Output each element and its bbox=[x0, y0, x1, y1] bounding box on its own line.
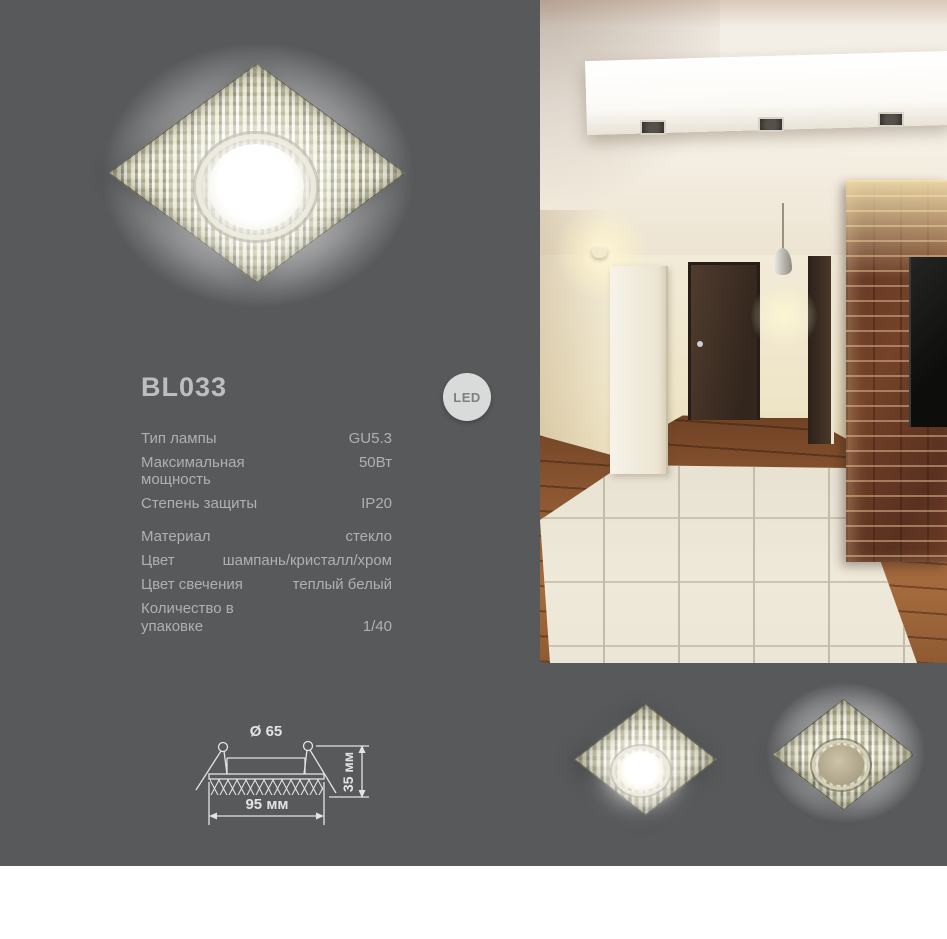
door-handle bbox=[697, 341, 703, 347]
spec-label: Цвет свечения bbox=[141, 576, 259, 593]
spec-value: стекло bbox=[345, 528, 392, 545]
spec-value: 50Вт bbox=[359, 454, 392, 471]
spec-value: шампань/кристалл/хром bbox=[223, 552, 392, 569]
spec-row-light-color: Цвет свечения теплый белый bbox=[141, 573, 392, 597]
spec-row-protection: Степень защиты IP20 bbox=[141, 492, 392, 516]
tv-screen bbox=[909, 257, 947, 427]
dimension-diagram: Ø 65 35 мм 95 мм bbox=[183, 712, 388, 839]
width-label: 95 мм bbox=[245, 796, 288, 813]
spec-value: IP20 bbox=[361, 495, 392, 512]
spec-row-max-power: Максимальная мощность 50Вт bbox=[141, 450, 392, 492]
recessed-spot-3 bbox=[878, 112, 904, 127]
spec-value: теплый белый bbox=[293, 576, 392, 593]
spec-label: Количество в упаковке bbox=[141, 600, 259, 635]
spec-label: Цвет bbox=[141, 552, 223, 569]
spec-row-pack-qty: Количество в упаковке 1/40 bbox=[141, 597, 392, 639]
caption-band: ЛАМПА СВЕТОДИОДНАЯ ПОДСВЕТКА bbox=[0, 866, 947, 939]
spec-label: Материал bbox=[141, 528, 259, 545]
wall-sconce bbox=[592, 248, 607, 258]
height-label: 35 мм bbox=[340, 752, 356, 792]
spec-row-lamp-type: Тип лампы GU5.3 bbox=[141, 426, 392, 450]
spec-label: Максимальная мощность bbox=[141, 454, 259, 489]
spec-value: GU5.3 bbox=[349, 430, 392, 447]
spec-value: 1/40 bbox=[363, 618, 392, 635]
mini-backlight-off-bulb bbox=[818, 745, 864, 785]
product-panel: BL033 LED Тип лампы GU5.3 Максимальная м… bbox=[0, 0, 947, 866]
spec-row-material: Материал стекло bbox=[141, 524, 392, 548]
flange-bar bbox=[209, 774, 324, 779]
led-badge-label: LED bbox=[453, 390, 481, 405]
spec-row-color: Цвет шампань/кристалл/хром bbox=[141, 548, 392, 572]
recessed-spot-2 bbox=[758, 117, 784, 132]
white-cabinet bbox=[610, 266, 668, 474]
spec-label: Тип лампы bbox=[141, 430, 259, 447]
recessed-spot-1 bbox=[640, 120, 666, 135]
spring-pivot-left bbox=[219, 743, 228, 752]
spec-label: Степень защиты bbox=[141, 495, 259, 512]
catalog-page: BL033 LED Тип лампы GU5.3 Максимальная м… bbox=[0, 0, 947, 939]
pendant-glow bbox=[736, 268, 832, 364]
can-body bbox=[227, 758, 305, 774]
led-badge: LED bbox=[443, 373, 491, 421]
pendant-cord bbox=[782, 203, 784, 251]
interior-photo bbox=[540, 0, 947, 663]
diameter-label: Ø 65 bbox=[250, 723, 283, 740]
product-code: BL033 bbox=[141, 372, 227, 403]
crystal-fringe bbox=[210, 779, 323, 795]
mini-lamp-lit-bulb bbox=[618, 751, 664, 791]
spring-pivot-right bbox=[304, 742, 313, 751]
hero-lit-bulb bbox=[208, 144, 304, 230]
spec-table: Тип лампы GU5.3 Максимальная мощность 50… bbox=[141, 426, 392, 638]
